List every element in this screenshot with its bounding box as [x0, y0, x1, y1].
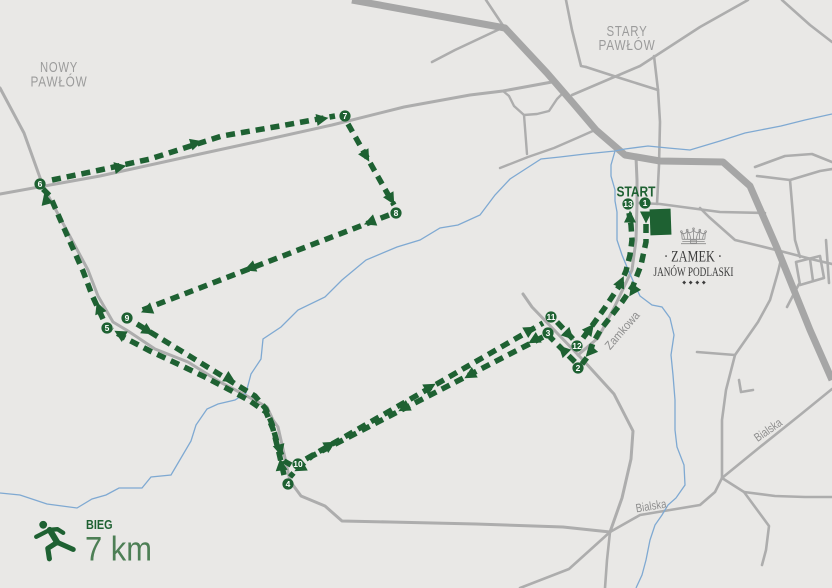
svg-text:3: 3	[546, 328, 551, 338]
svg-text:2: 2	[576, 363, 581, 373]
svg-text:PAWŁÓW: PAWŁÓW	[31, 74, 88, 91]
svg-text:12: 12	[572, 341, 582, 351]
svg-text:START: START	[617, 184, 656, 201]
svg-text:JANÓW PODLASKI: JANÓW PODLASKI	[654, 265, 734, 279]
svg-text:5: 5	[105, 323, 110, 333]
svg-text:10: 10	[293, 459, 303, 469]
svg-text:· ZAMEK ·: · ZAMEK ·	[664, 249, 722, 266]
svg-text:7 km: 7 km	[85, 531, 152, 569]
svg-text:8: 8	[394, 208, 399, 218]
svg-text:7: 7	[343, 111, 348, 121]
svg-text:4: 4	[286, 479, 291, 489]
svg-text:11: 11	[547, 312, 556, 322]
svg-text:9: 9	[125, 313, 130, 323]
svg-text:13: 13	[623, 199, 633, 209]
svg-text:♦ ♦ ♦ ♦: ♦ ♦ ♦ ♦	[682, 280, 707, 287]
svg-text:1: 1	[643, 198, 648, 208]
svg-text:PAWŁÓW: PAWŁÓW	[599, 37, 656, 54]
svg-text:6: 6	[38, 179, 43, 189]
